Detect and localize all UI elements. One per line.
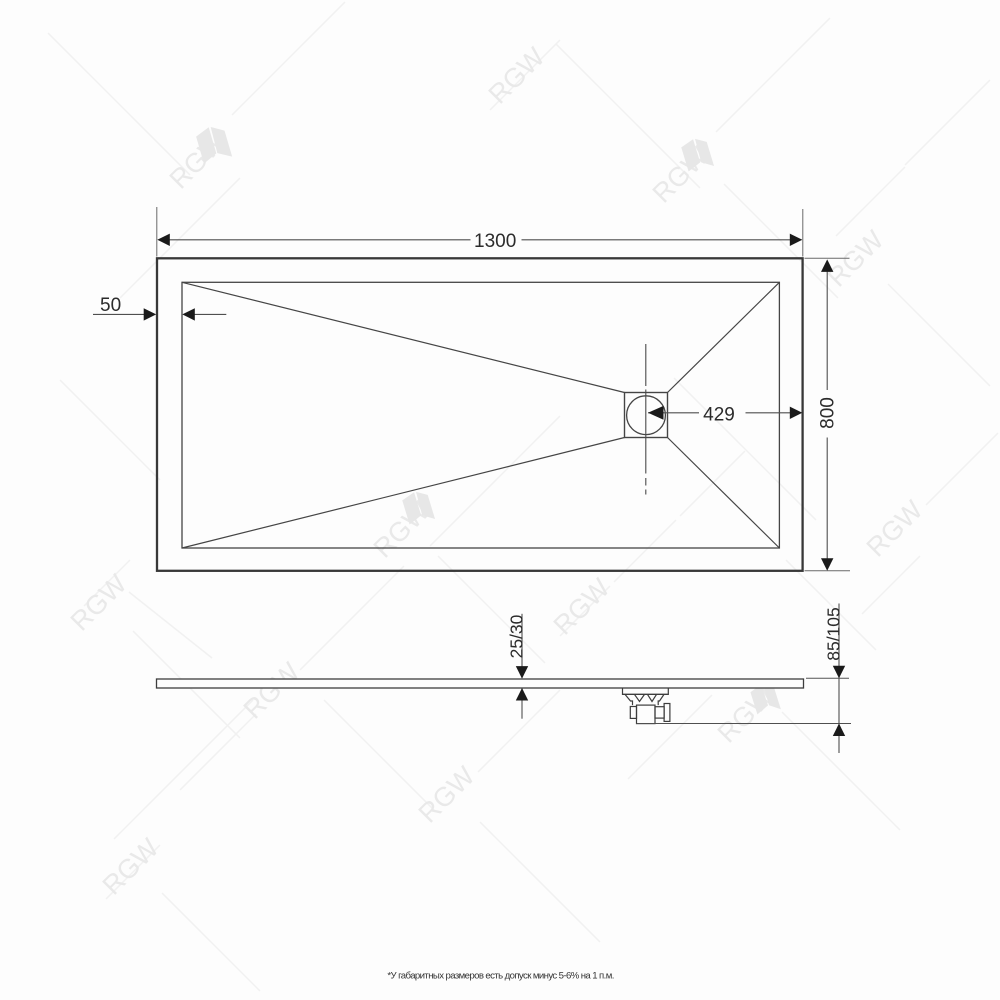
svg-text:*У габаритных размеров есть до: *У габаритных размеров есть допуск минус… bbox=[387, 970, 613, 981]
svg-text:50: 50 bbox=[100, 295, 121, 316]
svg-text:85/105: 85/105 bbox=[824, 607, 844, 661]
svg-text:800: 800 bbox=[818, 397, 839, 429]
svg-text:25/30: 25/30 bbox=[507, 614, 527, 658]
svg-text:1300: 1300 bbox=[474, 231, 516, 252]
svg-text:429: 429 bbox=[703, 405, 735, 426]
